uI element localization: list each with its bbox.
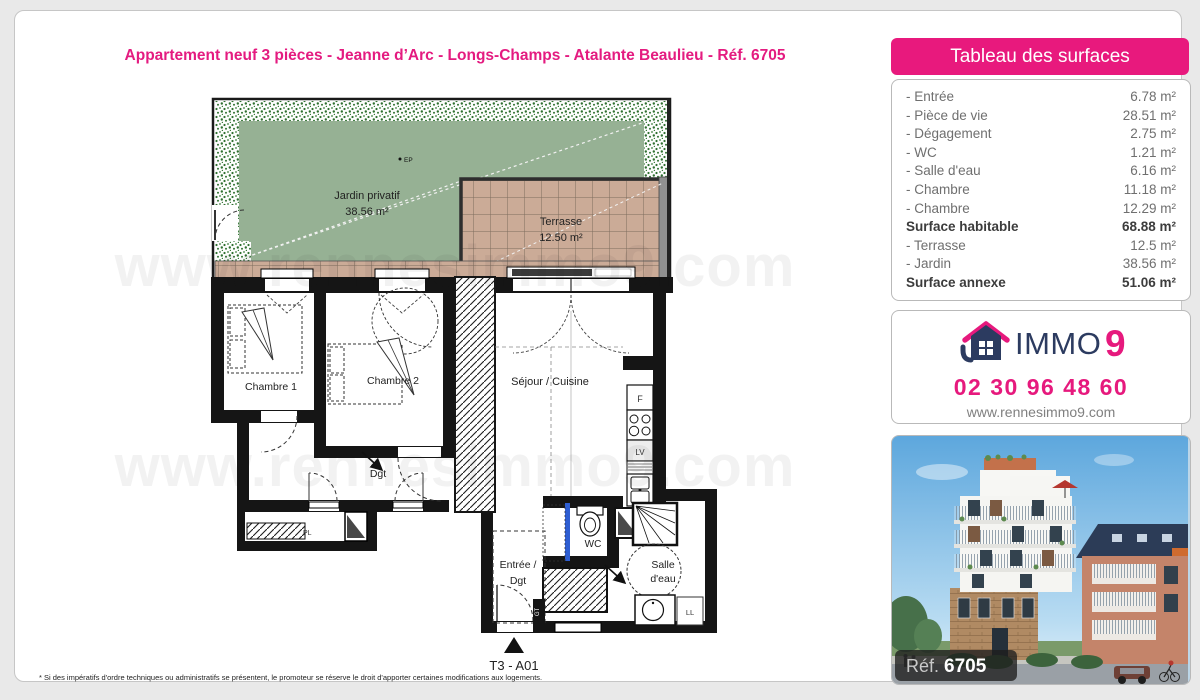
table-row: - Terrasse12.5 m² (906, 237, 1176, 256)
row-value: 11.18 m² (1124, 181, 1176, 200)
phone-number[interactable]: 02 30 96 48 60 (892, 374, 1190, 401)
row-value: 1.21 m² (1130, 144, 1176, 163)
dishwasher-label: LV (635, 448, 645, 457)
row-value: 51.06 m² (1122, 274, 1176, 293)
ep-marker-label: EP (404, 157, 413, 164)
surfaces-table: - Entrée6.78 m² - Pièce de vie28.51 m² -… (891, 79, 1191, 301)
table-row: - WC1.21 m² (906, 144, 1176, 163)
wc-label: WC (585, 539, 602, 550)
building-photo: Réf. 6705 (891, 435, 1191, 685)
brand-9: 9 (1105, 323, 1126, 364)
page: Appartement neuf 3 pièces - Jeanne d’Arc… (0, 0, 1200, 700)
logo-swoosh (963, 347, 971, 360)
ep-marker-dot (399, 158, 402, 161)
garden-area-label: 38.56 m² (345, 206, 389, 218)
row-label: Surface annexe (906, 274, 1006, 293)
bathroom: Salle d'eau LL (627, 503, 703, 625)
entry-label-1: Entrée / (500, 559, 537, 571)
row-label: - Jardin (906, 255, 951, 274)
table-row: - Jardin38.56 m² (906, 255, 1176, 274)
bathroom-label-2: d'eau (650, 573, 676, 585)
row-label: - Salle d'eau (906, 162, 981, 181)
table-row-total: Surface habitable68.88 m² (906, 218, 1176, 237)
bathroom-label-1: Salle (651, 559, 675, 571)
entry-zone: Entrée / Dgt GT (493, 531, 545, 625)
row-label: - Dégagement (906, 125, 992, 144)
living-guides (495, 311, 623, 496)
garden-name-label: Jardin privatif (334, 190, 400, 202)
terrace-area-label: 12.50 m² (539, 232, 583, 244)
fridge-label: F (637, 394, 643, 404)
terrace-name-label: Terrasse (540, 216, 582, 228)
table-row: - Chambre11.18 m² (906, 181, 1176, 200)
bedroom1-fan (242, 308, 273, 360)
table-row: - Salle d'eau6.16 m² (906, 162, 1176, 181)
row-label: - WC (906, 144, 937, 163)
hatched-party-wall (455, 277, 495, 512)
closet-pl: PL (303, 512, 367, 541)
row-value: 2.75 m² (1130, 125, 1176, 144)
row-label: - Terrasse (906, 237, 966, 256)
row-label: Surface habitable (906, 218, 1019, 237)
table-row: - Pièce de vie28.51 m² (906, 107, 1176, 126)
brand-immo: IMMO (1015, 326, 1101, 361)
ref-label: Réf. (906, 656, 939, 676)
hatched-duct (543, 568, 607, 612)
row-value: 28.51 m² (1123, 107, 1176, 126)
row-label: - Chambre (906, 181, 970, 200)
row-label: - Entrée (906, 88, 954, 107)
hall-label: Dgt (370, 468, 386, 480)
entry-label-2: Dgt (510, 575, 526, 587)
unit-label: T3 - A01 (489, 658, 538, 673)
contact-box: IMMO 9 02 30 96 48 60 www.rennesimmo9.co… (891, 310, 1191, 424)
shower (633, 503, 677, 545)
row-value: 6.16 m² (1130, 162, 1176, 181)
row-value: 12.5 m² (1130, 237, 1176, 256)
bedroom2-label: Chambre 2 (367, 375, 419, 387)
row-label: - Chambre (906, 200, 970, 219)
closet-label: PL (303, 530, 312, 537)
kitchen-column: F LV (627, 385, 653, 506)
building-render: Réf. 6705 (892, 436, 1188, 684)
content-card: Appartement neuf 3 pièces - Jeanne d’Arc… (14, 10, 1182, 682)
washer-label: LL (686, 608, 694, 617)
entry-arrow (504, 637, 524, 653)
footnote: * Si des impératifs d'ordre techniques o… (39, 673, 542, 682)
gt-label: GT (535, 608, 541, 617)
row-value: 12.29 m² (1123, 200, 1176, 219)
table-row-total: Surface annexe51.06 m² (906, 274, 1176, 293)
wc-room: WC (543, 503, 603, 561)
row-value: 6.78 m² (1130, 88, 1176, 107)
cyclist (1169, 661, 1174, 666)
table-row: - Entrée6.78 m² (906, 88, 1176, 107)
bedroom1-label: Chambre 1 (245, 381, 297, 393)
row-value: 38.56 m² (1123, 255, 1176, 274)
hatched-closet (247, 523, 305, 539)
row-label: - Pièce de vie (906, 107, 988, 126)
partition-marker (565, 503, 570, 561)
immo9-logo: IMMO 9 (941, 319, 1141, 367)
row-value: 68.88 m² (1122, 218, 1176, 237)
table-row: - Dégagement2.75 m² (906, 125, 1176, 144)
ref-number: 6705 (944, 656, 987, 677)
living-label: Séjour / Cuisine (511, 376, 589, 388)
website-link[interactable]: www.rennesimmo9.com (892, 404, 1190, 420)
table-row: - Chambre12.29 m² (906, 200, 1176, 219)
surfaces-header: Tableau des surfaces (891, 38, 1189, 75)
